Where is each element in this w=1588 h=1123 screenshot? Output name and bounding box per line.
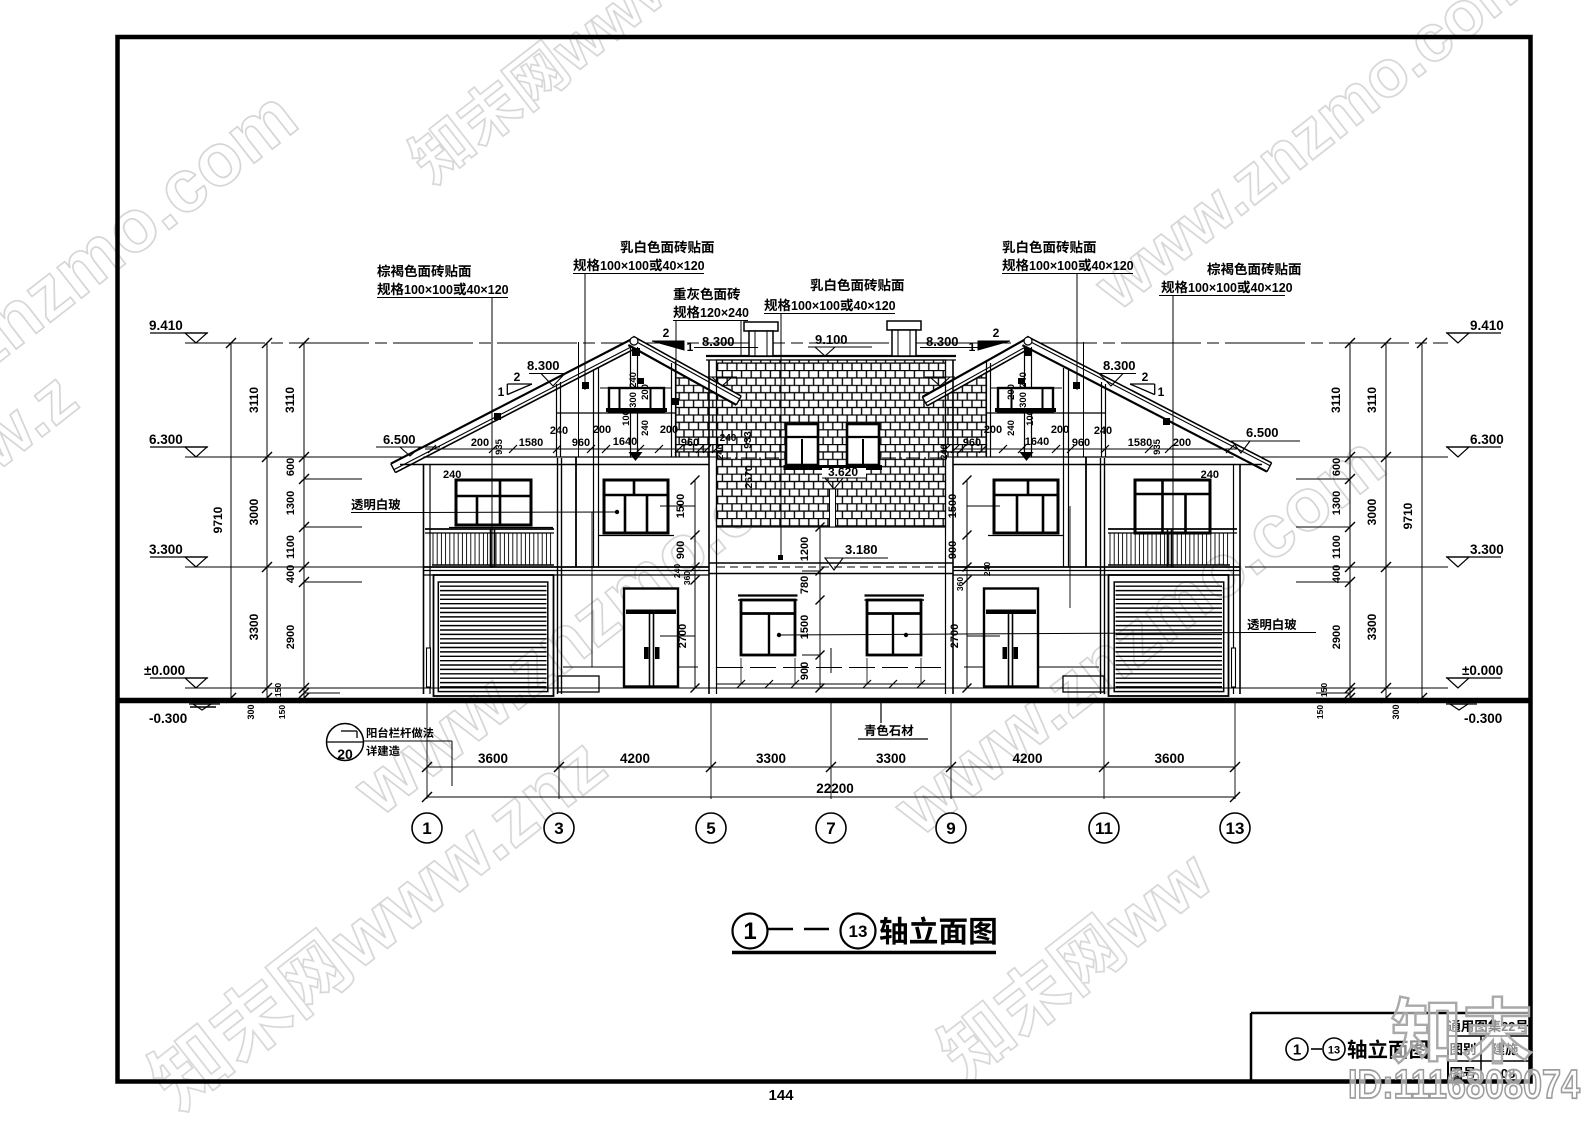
svg-text:240: 240 [1006, 420, 1017, 436]
svg-text:3300: 3300 [1365, 613, 1379, 640]
svg-text:100×100: 100×100 [600, 259, 649, 273]
svg-text:200: 200 [1051, 424, 1069, 436]
svg-text:3110: 3110 [1365, 387, 1379, 413]
svg-text:40×120: 40×120 [1092, 259, 1134, 273]
svg-text:40×120: 40×120 [663, 259, 705, 273]
svg-text:240: 240 [550, 425, 568, 437]
svg-text:40×120: 40×120 [1251, 281, 1293, 295]
svg-text:200: 200 [1173, 437, 1191, 449]
svg-text:120×240: 120×240 [700, 306, 749, 320]
svg-text:200: 200 [471, 437, 489, 449]
svg-text:6.300: 6.300 [1470, 432, 1504, 447]
svg-text:2: 2 [663, 326, 670, 340]
svg-text:400: 400 [285, 565, 297, 583]
svg-text:200: 200 [660, 424, 678, 436]
svg-text:2: 2 [1142, 370, 1149, 384]
svg-text:1300: 1300 [285, 491, 297, 515]
svg-text:1: 1 [743, 918, 756, 945]
svg-text:3.300: 3.300 [149, 542, 183, 557]
svg-text:933: 933 [742, 431, 754, 449]
svg-text:20: 20 [337, 746, 353, 762]
svg-text:600: 600 [1331, 458, 1343, 476]
svg-text:9.410: 9.410 [1470, 318, 1504, 333]
svg-text:3: 3 [554, 819, 563, 838]
svg-text:600: 600 [285, 458, 297, 476]
svg-text:1640: 1640 [1025, 436, 1049, 448]
svg-text:900: 900 [947, 541, 959, 559]
svg-text:935: 935 [494, 438, 505, 455]
svg-text:1580: 1580 [1128, 437, 1152, 449]
svg-text:3.180: 3.180 [845, 542, 878, 557]
svg-text:±0.000: ±0.000 [144, 663, 185, 678]
svg-text:13: 13 [1328, 1045, 1340, 1057]
svg-text:8.300: 8.300 [1103, 358, 1136, 373]
svg-text:100×100: 100×100 [404, 283, 453, 297]
svg-text:3110: 3110 [1329, 387, 1343, 413]
svg-text:3600: 3600 [478, 751, 508, 766]
svg-text:1100: 1100 [1331, 535, 1343, 559]
svg-text:5: 5 [706, 819, 715, 838]
svg-text:150: 150 [273, 683, 283, 697]
svg-text:1: 1 [498, 385, 505, 399]
svg-text:240: 240 [1018, 372, 1029, 388]
svg-text:9710: 9710 [1401, 502, 1415, 529]
svg-text:9.100: 9.100 [815, 332, 848, 347]
svg-text:150: 150 [277, 705, 287, 719]
svg-text:935: 935 [1152, 438, 1163, 455]
svg-text:3.300: 3.300 [1470, 542, 1504, 557]
svg-text:200: 200 [593, 424, 611, 436]
svg-text:960: 960 [681, 437, 699, 449]
svg-text:400: 400 [1331, 565, 1343, 583]
svg-text:3000: 3000 [247, 498, 261, 525]
svg-text:3300: 3300 [247, 613, 261, 640]
svg-text:7: 7 [826, 819, 835, 838]
svg-text:3110: 3110 [283, 387, 297, 413]
svg-text:4200: 4200 [620, 751, 650, 766]
svg-text:2900: 2900 [285, 625, 297, 649]
svg-text:22200: 22200 [816, 781, 854, 796]
svg-text:1500: 1500 [947, 494, 959, 518]
svg-text:960: 960 [963, 437, 981, 449]
svg-text:960: 960 [572, 437, 590, 449]
svg-text:960: 960 [1072, 437, 1090, 449]
svg-text:6.500: 6.500 [1246, 425, 1279, 440]
svg-text:150: 150 [1319, 683, 1329, 697]
svg-text:240: 240 [715, 444, 726, 460]
svg-text:100: 100 [621, 410, 632, 426]
svg-text:3300: 3300 [756, 751, 786, 766]
svg-text:9: 9 [946, 819, 955, 838]
svg-text:1580: 1580 [519, 437, 543, 449]
svg-text:2670: 2670 [743, 465, 755, 489]
svg-text:900: 900 [675, 541, 687, 559]
svg-text:8.300: 8.300 [926, 334, 959, 349]
svg-text:360: 360 [955, 577, 965, 591]
svg-text:13: 13 [849, 922, 868, 941]
svg-text:200: 200 [1006, 384, 1017, 400]
svg-text:13: 13 [1226, 819, 1245, 838]
svg-text:240: 240 [628, 372, 639, 388]
svg-text:240: 240 [443, 469, 461, 481]
svg-text:4200: 4200 [1012, 751, 1042, 766]
svg-text:240: 240 [720, 433, 737, 444]
svg-text:8.300: 8.300 [702, 334, 735, 349]
svg-text:300: 300 [246, 704, 256, 719]
svg-text:100×100: 100×100 [1188, 281, 1237, 295]
svg-text:360: 360 [682, 571, 692, 585]
svg-text:3600: 3600 [1154, 751, 1184, 766]
svg-text:3000: 3000 [1365, 498, 1379, 525]
svg-text:9.410: 9.410 [149, 318, 183, 333]
svg-text:240: 240 [982, 562, 992, 576]
svg-text:144: 144 [768, 1087, 794, 1104]
svg-text:300: 300 [1018, 392, 1029, 408]
svg-text:100: 100 [1025, 410, 1036, 426]
svg-text:1200: 1200 [799, 537, 811, 561]
svg-text:1640: 1640 [613, 436, 637, 448]
svg-text:2700: 2700 [949, 624, 961, 648]
svg-text:300: 300 [628, 392, 639, 408]
svg-text:900: 900 [799, 662, 811, 680]
svg-text:200: 200 [640, 384, 651, 400]
svg-text:240: 240 [939, 444, 950, 460]
svg-text:780: 780 [799, 576, 811, 594]
svg-text:-0.300: -0.300 [1464, 711, 1502, 726]
svg-text:3110: 3110 [247, 387, 261, 413]
svg-text:2: 2 [514, 370, 521, 384]
svg-text:240: 240 [672, 564, 682, 578]
svg-text:200: 200 [984, 424, 1002, 436]
svg-text:150: 150 [1315, 705, 1325, 719]
svg-text:8.300: 8.300 [527, 358, 560, 373]
svg-text:100×100: 100×100 [1029, 259, 1078, 273]
svg-text:1: 1 [687, 340, 694, 354]
svg-text:240: 240 [1201, 469, 1219, 481]
svg-text:1: 1 [1293, 1042, 1301, 1059]
svg-text:1500: 1500 [799, 615, 811, 639]
svg-text:1300: 1300 [1331, 491, 1343, 515]
svg-text:11: 11 [1095, 819, 1113, 838]
svg-text:3.620: 3.620 [828, 465, 858, 479]
svg-text:1: 1 [422, 819, 431, 838]
svg-text:240: 240 [1094, 425, 1112, 437]
svg-text:9710: 9710 [211, 506, 225, 533]
svg-text:300: 300 [1391, 704, 1401, 719]
svg-text:3300: 3300 [876, 751, 906, 766]
svg-text:6.300: 6.300 [149, 432, 183, 447]
svg-text:-0.300: -0.300 [149, 711, 187, 726]
svg-text:6.500: 6.500 [383, 432, 416, 447]
svg-text:±0.000: ±0.000 [1462, 663, 1503, 678]
svg-text:40×120: 40×120 [854, 299, 896, 313]
svg-text:2: 2 [993, 326, 1000, 340]
svg-text:100×100: 100×100 [791, 299, 840, 313]
svg-text:1100: 1100 [285, 535, 297, 559]
svg-text:2900: 2900 [1331, 625, 1343, 649]
svg-text:1: 1 [1158, 385, 1165, 399]
svg-text:40×120: 40×120 [467, 283, 509, 297]
svg-text:ID:1116808074: ID:1116808074 [1348, 1061, 1580, 1107]
svg-text:240: 240 [640, 420, 651, 436]
